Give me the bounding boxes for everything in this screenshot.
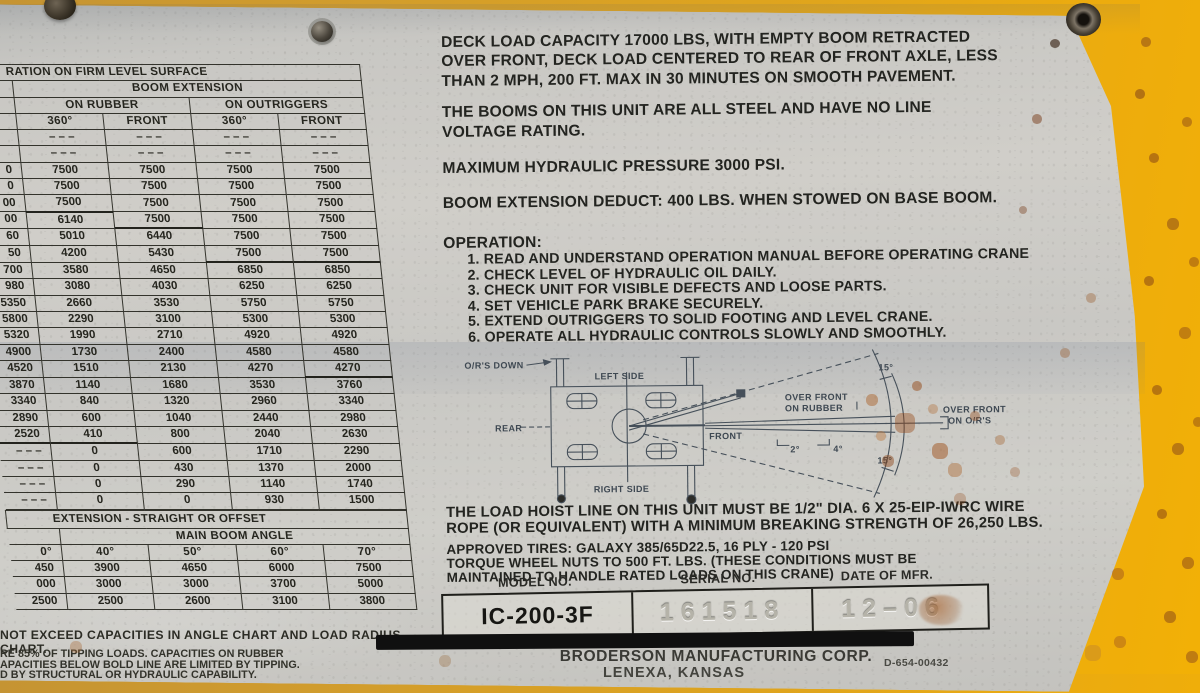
label-over-front-ors: OVER FRONT bbox=[943, 404, 1006, 415]
capacity-cell: 0 bbox=[143, 493, 232, 509]
left-partial-cell: 4900 bbox=[0, 344, 42, 360]
boom-extension-header: BOOM EXTENSION bbox=[12, 81, 363, 97]
serial-number: 161518 bbox=[660, 596, 786, 627]
left-partial-cell: 2520 bbox=[0, 427, 50, 444]
svg-text:ON O/R'S: ON O/R'S bbox=[948, 416, 991, 426]
screw-top-center bbox=[311, 21, 333, 42]
capacity-cell: 3530 bbox=[218, 377, 307, 394]
table-row: 252041080020402630 bbox=[0, 427, 399, 444]
left-partial-cell: 5320 bbox=[0, 328, 40, 344]
table-row: – – –029011401740 bbox=[2, 476, 405, 492]
capacity-cell: 7500 bbox=[110, 179, 199, 195]
capacity-cell: 3900 bbox=[63, 561, 152, 577]
photo-of-crane-capacity-plate: { "left_chart": { "surface_title": "RATI… bbox=[0, 0, 1200, 674]
left-partial-cell bbox=[0, 130, 19, 146]
capacity-cell: 7500 bbox=[23, 179, 112, 195]
serial-box: 161518 bbox=[631, 589, 812, 634]
part-number: D-654-00432 bbox=[884, 657, 949, 669]
group-on-rubber: ON RUBBER bbox=[14, 97, 190, 113]
angle-col-header: 40° bbox=[61, 544, 150, 560]
capacity-cell: 0 bbox=[50, 443, 139, 460]
capacity-cell: 1680 bbox=[131, 377, 220, 394]
capacity-cell: 2500 bbox=[66, 593, 155, 609]
capacity-cell: 2630 bbox=[310, 427, 399, 444]
hydraulic-pressure-line: MAXIMUM HYDRAULIC PRESSURE 3000 PSI. bbox=[442, 152, 1150, 179]
capacity-cell: 3080 bbox=[33, 279, 122, 295]
capacity-cell: – – – bbox=[281, 146, 370, 162]
label-15-degrees-top: 15° bbox=[878, 363, 893, 373]
capacity-cell: 7500 bbox=[284, 179, 373, 195]
col-header: FRONT bbox=[103, 113, 192, 129]
capacity-cell: 7500 bbox=[290, 228, 379, 245]
capacity-cell: 7500 bbox=[197, 179, 286, 195]
main-boom-angle-header: MAIN BOOM ANGLE bbox=[59, 528, 410, 544]
blank-cell bbox=[7, 528, 61, 544]
capacity-cell: 4030 bbox=[120, 279, 209, 295]
capacity-cell: 3340 bbox=[307, 394, 396, 410]
left-partial-cell: 5800 bbox=[0, 311, 38, 327]
capacity-cell: 7500 bbox=[288, 212, 377, 229]
col-header: 360° bbox=[190, 113, 279, 129]
left-partial-cell: – – – bbox=[0, 460, 54, 476]
capacity-cell: 1730 bbox=[40, 344, 129, 360]
table-row: – – –– – –– – –– – – bbox=[0, 146, 370, 162]
capacity-cell: 7500 bbox=[24, 195, 113, 212]
id-plate-section: MODEL NO. SERIAL NO. DATE OF MFR. IC-200… bbox=[441, 566, 990, 640]
capacity-cell: – – – bbox=[194, 146, 283, 162]
blank-cell bbox=[0, 113, 17, 129]
capacity-cell: 1710 bbox=[225, 443, 314, 460]
label-right-side: RIGHT SIDE bbox=[594, 484, 650, 495]
table-row: – – –009301500 bbox=[4, 493, 407, 509]
label-front: FRONT bbox=[709, 431, 742, 441]
left-partial-cell: – – – bbox=[0, 443, 52, 460]
capacity-cell: 1140 bbox=[43, 377, 132, 394]
table-row: – – –060017102290 bbox=[0, 443, 401, 460]
capacity-cell: 5430 bbox=[117, 245, 206, 262]
capacity-cell: 5750 bbox=[297, 295, 386, 311]
left-partial-cell: 450 bbox=[11, 561, 65, 577]
table-row: 0003000300037005000 bbox=[12, 577, 415, 593]
capacity-cell: 3100 bbox=[241, 593, 330, 609]
capacity-cell: 4920 bbox=[213, 328, 302, 344]
capacity-cell: 0 bbox=[54, 476, 143, 492]
left-partial-cell: 5350 bbox=[0, 295, 37, 311]
capacity-cell: 6850 bbox=[206, 262, 295, 279]
capacity-cell: 6250 bbox=[208, 279, 297, 295]
capacity-cell: 5000 bbox=[326, 577, 415, 593]
col-header: FRONT bbox=[277, 113, 366, 129]
capacity-cell: 1320 bbox=[132, 394, 221, 410]
capacity-cell: 3530 bbox=[122, 295, 211, 311]
left-partial-cell: 700 bbox=[0, 262, 33, 279]
table-row: 38701140168035303760 bbox=[0, 377, 394, 394]
capacity-cell: – – – bbox=[279, 130, 368, 146]
boom-angle-table: EXTENSION - STRAIGHT OR OFFSET MAIN BOOM… bbox=[5, 510, 418, 610]
capacity-cell: – – – bbox=[105, 130, 194, 146]
capacity-cell: 4650 bbox=[150, 561, 239, 577]
capacity-cell: 1990 bbox=[38, 328, 127, 344]
capacity-cell: 4270 bbox=[216, 360, 305, 377]
rust-smudge-date-box bbox=[919, 595, 966, 626]
left-partial-cell: 3870 bbox=[0, 377, 45, 394]
capacity-cell: 7500 bbox=[21, 162, 110, 178]
table-row: 53502660353057505750 bbox=[0, 295, 386, 311]
capacity-cell: 6250 bbox=[295, 279, 384, 295]
left-partial-cell: 3340 bbox=[0, 394, 47, 410]
table-row: 007500750075007500 bbox=[0, 195, 375, 212]
angle-col-header: 0° bbox=[9, 544, 63, 560]
left-partial-cell: – – – bbox=[2, 476, 56, 492]
capacity-cell: – – – bbox=[106, 146, 195, 162]
capacity-cell: 7500 bbox=[113, 212, 202, 229]
load-chart-table: RATION ON FIRM LEVEL SURFACE BOOM EXTENS… bbox=[0, 64, 407, 510]
capacity-cell: 3000 bbox=[64, 577, 153, 593]
capacity-cell: 410 bbox=[49, 427, 138, 444]
capacity-cell: 4650 bbox=[119, 262, 208, 279]
capacity-cell: 0 bbox=[52, 460, 141, 476]
col-header: 360° bbox=[16, 113, 105, 129]
capacity-cell: 7500 bbox=[204, 245, 293, 262]
operation-list: 1. READ AND UNDERSTAND OPERATION MANUAL … bbox=[443, 246, 1152, 346]
table-row: 58002290310053005300 bbox=[0, 311, 387, 327]
capacity-cell: 4580 bbox=[214, 344, 303, 360]
label-15-degrees-bottom: 15° bbox=[877, 456, 892, 466]
capacity-cell: 7500 bbox=[195, 162, 284, 178]
manufacturer-city: LENEXA, KANSAS bbox=[400, 665, 948, 681]
serial-label: SERIAL NO. bbox=[629, 570, 807, 590]
capacity-cell: – – – bbox=[17, 130, 106, 146]
left-partial-cell bbox=[0, 146, 21, 162]
table-row: 07500750075007500 bbox=[0, 162, 372, 178]
capacity-cell: 1140 bbox=[228, 476, 317, 492]
capacity-cell: 2660 bbox=[35, 295, 124, 311]
capacity-cell: 4270 bbox=[303, 360, 392, 377]
table-row: 4503900465060007500 bbox=[11, 561, 414, 577]
extension-title: EXTENSION - STRAIGHT OR OFFSET bbox=[5, 510, 408, 528]
table-row: – – –043013702000 bbox=[0, 460, 403, 476]
booms-steel-paragraph: THE BOOMS ON THIS UNIT ARE ALL STEEL AND… bbox=[442, 96, 1150, 142]
table-row: 25002500260031003800 bbox=[14, 593, 417, 609]
left-partial-cell: 2500 bbox=[14, 593, 68, 609]
left-partial-cell: 00 bbox=[0, 195, 26, 212]
boom-extension-deduct-line: BOOM EXTENSION DEDUCT: 400 LBS. WHEN STO… bbox=[443, 187, 1151, 214]
capacity-cell: 930 bbox=[230, 493, 319, 509]
capacity-cell: – – – bbox=[192, 130, 281, 146]
table-row: – – –– – –– – –– – – bbox=[0, 130, 368, 146]
capacity-cell: 7500 bbox=[202, 228, 291, 245]
capacity-cell: 7500 bbox=[291, 245, 380, 262]
capacity-cell: 6140 bbox=[26, 212, 115, 229]
left-partial-cell: 980 bbox=[0, 279, 35, 295]
angle-col-header: 70° bbox=[323, 544, 412, 560]
date-label: DATE OF MFR. bbox=[807, 567, 967, 587]
capacity-cell: 800 bbox=[136, 427, 225, 444]
capacity-cell: 4920 bbox=[300, 328, 389, 344]
label-over-front-rubber: OVER FRONT bbox=[785, 392, 848, 403]
capacity-cell: – – – bbox=[19, 146, 108, 162]
capacity-cell: 3800 bbox=[328, 593, 417, 609]
capacity-cell: 2000 bbox=[314, 460, 403, 476]
crane-top-view-diagram: O/R'S DOWN LEFT SIDE RIGHT SIDE REAR FRO… bbox=[442, 341, 1154, 506]
capacity-cell: 0 bbox=[56, 493, 145, 509]
right-text-panel: DECK LOAD CAPACITY 17000 LBS, WITH EMPTY… bbox=[441, 26, 1155, 585]
deck-load-paragraph: DECK LOAD CAPACITY 17000 LBS, WITH EMPTY… bbox=[441, 26, 1150, 92]
boom-line bbox=[629, 394, 739, 426]
table-row: 006140750075007500 bbox=[0, 212, 377, 229]
table-row: 9803080403062506250 bbox=[0, 279, 384, 295]
capacity-cell: 2440 bbox=[221, 410, 310, 426]
left-partial-cell: 2890 bbox=[0, 410, 49, 426]
capacity-cell: 7500 bbox=[201, 212, 290, 229]
capacity-cell: 840 bbox=[45, 394, 134, 410]
capacity-cell: 4200 bbox=[30, 245, 119, 262]
capacity-cell: 5010 bbox=[28, 228, 117, 245]
table-row: 2890600104024402980 bbox=[0, 410, 398, 426]
angle-col-header: 50° bbox=[148, 544, 237, 560]
capacity-cell: 2710 bbox=[125, 328, 214, 344]
table-row: 53201990271049204920 bbox=[0, 328, 389, 344]
capacity-cell: 3580 bbox=[31, 262, 120, 279]
capacity-cell: 4580 bbox=[302, 344, 391, 360]
capacity-cell: 3000 bbox=[152, 577, 241, 593]
capacity-cell: 2290 bbox=[312, 443, 401, 460]
capacity-cell: 7500 bbox=[324, 561, 413, 577]
left-partial-cell: 60 bbox=[0, 228, 30, 245]
table-row: 07500750075007500 bbox=[0, 179, 373, 195]
capacity-cell: 1500 bbox=[317, 493, 406, 509]
model-label: MODEL NO. bbox=[441, 573, 629, 594]
diagram-svg: O/R'S DOWN LEFT SIDE RIGHT SIDE REAR FRO… bbox=[442, 342, 1014, 508]
table-row: 7003580465068506850 bbox=[0, 262, 382, 279]
capacity-cell: 600 bbox=[47, 410, 136, 426]
capacity-cell: 2130 bbox=[129, 360, 218, 377]
capacity-cell: 6440 bbox=[115, 228, 204, 245]
capacity-cell: 3100 bbox=[124, 311, 213, 327]
capacity-cell: 2600 bbox=[153, 593, 242, 609]
capacity-cell: 7500 bbox=[199, 195, 288, 212]
capacity-cell: 1510 bbox=[42, 360, 131, 377]
group-on-outriggers: ON OUTRIGGERS bbox=[188, 97, 364, 113]
capacity-cell: 1740 bbox=[316, 476, 405, 492]
surface-title: RATION ON FIRM LEVEL SURFACE bbox=[0, 65, 361, 81]
screw-top-right bbox=[1066, 3, 1101, 36]
svg-text:ON RUBBER: ON RUBBER bbox=[785, 403, 843, 414]
capacity-cell: 7500 bbox=[286, 195, 375, 212]
left-partial-cell: 50 bbox=[0, 245, 31, 262]
capacity-cell: 2980 bbox=[309, 410, 398, 426]
capacity-cell: 7500 bbox=[112, 195, 201, 212]
capacity-cell: 5300 bbox=[298, 311, 387, 327]
left-partial-cell: 0 bbox=[0, 162, 23, 178]
table-row: 49001730240045804580 bbox=[0, 344, 391, 360]
notes-small: RE 85% OF TIPPING LOADS. CAPACITIES ON R… bbox=[0, 649, 380, 681]
capacity-cell: 600 bbox=[138, 443, 227, 460]
capacity-cell: 2040 bbox=[223, 427, 312, 444]
capacity-cell: 1370 bbox=[227, 460, 316, 476]
capacity-cell: 3700 bbox=[239, 577, 328, 593]
capacity-cell: 7500 bbox=[108, 162, 197, 178]
capacity-cell: 7500 bbox=[283, 162, 372, 178]
table-row: 504200543075007500 bbox=[0, 245, 380, 262]
model-number: IC-200-3F bbox=[481, 601, 594, 630]
angle-col-header: 60° bbox=[235, 544, 324, 560]
capacity-cell: 2290 bbox=[37, 311, 126, 327]
label-rear: REAR bbox=[495, 423, 522, 433]
capacity-cell: 290 bbox=[141, 476, 230, 492]
capacity-cell: 430 bbox=[139, 460, 228, 476]
left-partial-cell: 00 bbox=[0, 212, 28, 229]
label-2-degrees: 2° bbox=[790, 445, 800, 455]
capacity-cell: 5750 bbox=[209, 295, 298, 311]
capacity-cell: 5300 bbox=[211, 311, 300, 327]
table-row: 45201510213042704270 bbox=[0, 360, 392, 377]
capacity-cell: 6000 bbox=[237, 561, 326, 577]
left-partial-cell: – – – bbox=[4, 493, 58, 509]
left-partial-cell: 0 bbox=[0, 179, 24, 195]
left-partial-cell: 4520 bbox=[0, 360, 43, 377]
model-box: IC-200-3F bbox=[443, 592, 632, 638]
table-row: 3340840132029603340 bbox=[0, 394, 396, 410]
label-left-side: LEFT SIDE bbox=[595, 371, 645, 382]
table-row: 605010644075007500 bbox=[0, 228, 379, 245]
capacity-cell: 2960 bbox=[220, 394, 309, 410]
capacity-cell: 2400 bbox=[127, 344, 216, 360]
label-4-degrees: 4° bbox=[833, 444, 843, 454]
capacity-cell: 3760 bbox=[305, 377, 394, 394]
capacity-cell: 1040 bbox=[134, 410, 223, 426]
left-partial-cell: 000 bbox=[12, 577, 66, 593]
load-chart-section: RATION ON FIRM LEVEL SURFACE BOOM EXTENS… bbox=[0, 64, 419, 610]
label-ors-down: O/R'S DOWN bbox=[464, 360, 523, 371]
capacity-cell: 6850 bbox=[293, 262, 382, 279]
